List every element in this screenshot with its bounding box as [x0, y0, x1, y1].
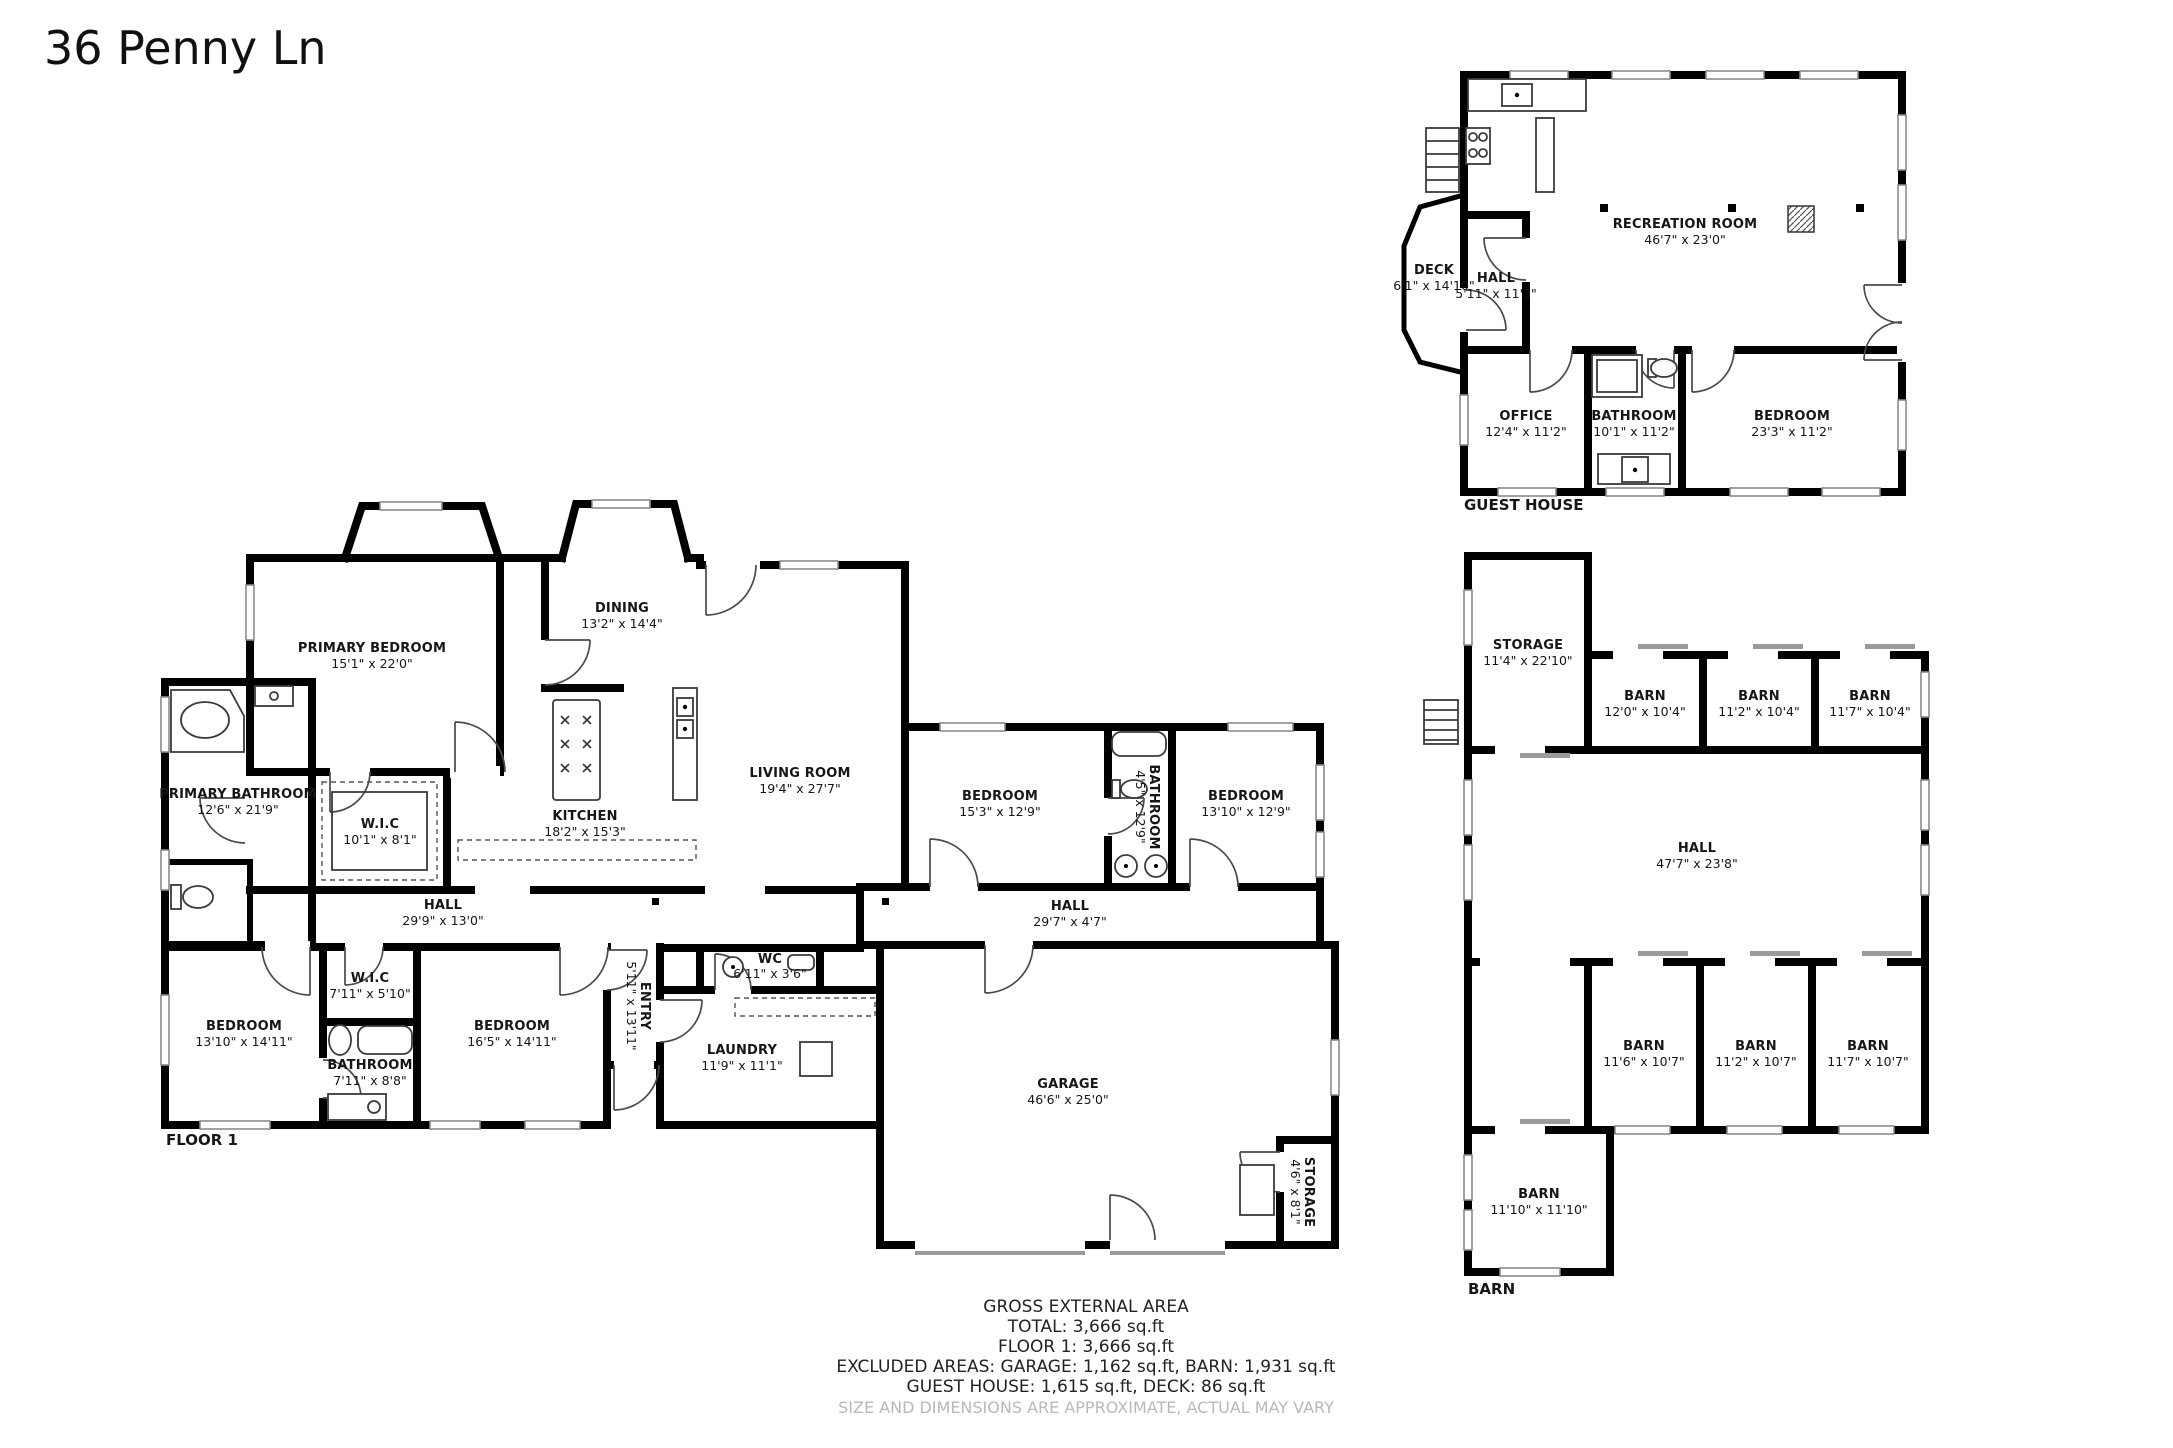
- room-dims-bedroom-mid: 16'5" x 14'11": [467, 1034, 556, 1049]
- floor-plan-page: 36 Penny Ln: [0, 0, 2173, 1448]
- guest-house-plan: RECREATION ROOM 46'7" x 23'0" DECK 6'1" …: [1393, 71, 1907, 514]
- column-marker: [1856, 204, 1864, 212]
- washer-icon: [800, 1042, 832, 1076]
- room-label-living-room: LIVING ROOM: [749, 766, 850, 781]
- room-dims-barn-hall: 47'7" x 23'8": [1656, 856, 1737, 871]
- ladder-icon: [1424, 700, 1458, 744]
- room-label-deck: DECK: [1414, 263, 1455, 278]
- room-label-barn-t1: BARN: [1624, 689, 1666, 704]
- room-dims-gh-hall: 5'11" x 11'3": [1455, 286, 1536, 301]
- room-label-barn-b1: BARN: [1623, 1039, 1665, 1054]
- room-label-wic: W.I.C: [361, 817, 400, 832]
- room-label-wic-small: W.I.C: [351, 971, 390, 986]
- room-dims-barn-sw: 11'10" x 11'10": [1490, 1202, 1587, 1217]
- room-dims-bedroom-right2: 13'10" x 12'9": [1201, 804, 1290, 819]
- caption-barn: BARN: [1468, 1280, 1515, 1298]
- room-dims-garage: 46'6" x 25'0": [1027, 1092, 1108, 1107]
- workbench-icon: [1240, 1165, 1274, 1215]
- room-label-gh-bathroom: BATHROOM: [1591, 409, 1676, 424]
- room-label-barn-sw: BARN: [1518, 1187, 1560, 1202]
- room-dims-bedroom-left: 13'10" x 14'11": [195, 1034, 292, 1049]
- room-label-bedroom-right2: BEDROOM: [1208, 789, 1284, 804]
- room-label-gh-bedroom: BEDROOM: [1754, 409, 1830, 424]
- area-summary: GROSS EXTERNAL AREA TOTAL: 3,666 sq.ft F…: [836, 1297, 1335, 1417]
- room-dims-barn-b1: 11'6" x 10'7": [1603, 1054, 1684, 1069]
- room-dims-barn-t1: 12'0" x 10'4": [1604, 704, 1685, 719]
- room-label-wc: WC: [758, 952, 782, 967]
- toilet-icon: [183, 886, 213, 908]
- room-label-kitchen: KITCHEN: [552, 809, 617, 824]
- room-label-bedroom-right1: BEDROOM: [962, 789, 1038, 804]
- summary-disclaimer: SIZE AND DIMENSIONS ARE APPROXIMATE, ACT…: [838, 1398, 1334, 1417]
- room-label-primary-bedroom: PRIMARY BEDROOM: [298, 641, 446, 656]
- room-dims-office: 12'4" x 11'2": [1485, 424, 1566, 439]
- fireplace-icon: [1788, 206, 1814, 232]
- room-dims-recreation-room: 46'7" x 23'0": [1644, 232, 1725, 247]
- room-label-barn-hall: HALL: [1678, 841, 1716, 856]
- room-label-dining: DINING: [595, 601, 649, 616]
- room-dims-gh-bedroom: 23'3" x 11'2": [1751, 424, 1832, 439]
- summary-guesthouse-deck: GUEST HOUSE: 1,615 sq.ft, DECK: 86 sq.ft: [907, 1377, 1266, 1397]
- room-dims-barn-t3: 11'7" x 10'4": [1829, 704, 1910, 719]
- room-label-hall-main: HALL: [424, 898, 462, 913]
- room-dims-primary-bedroom: 15'1" x 22'0": [331, 656, 412, 671]
- barn-labels: STORAGE 11'4" x 22'10" BARN 12'0" x 10'4…: [1468, 638, 1911, 1298]
- room-dims-hall-main: 29'9" x 13'0": [402, 913, 483, 928]
- room-dims-wc: 6'11" x 3'6": [733, 966, 806, 981]
- toilet-tank-icon: [171, 885, 181, 909]
- column-marker: [1600, 204, 1608, 212]
- room-label-bedroom-left: BEDROOM: [206, 1019, 282, 1034]
- column-marker: [882, 898, 889, 905]
- summary-excluded: EXCLUDED AREAS: GARAGE: 1,162 sq.ft, BAR…: [836, 1357, 1335, 1377]
- bathtub-icon: [1112, 732, 1166, 756]
- room-dims-wic-small: 7'11" x 5'10": [329, 986, 410, 1001]
- page-title: 36 Penny Ln: [44, 21, 327, 75]
- room-label-barn-t2: BARN: [1738, 689, 1780, 704]
- room-dims-barn-storage: 11'4" x 22'10": [1483, 653, 1572, 668]
- room-label-garage: GARAGE: [1037, 1077, 1099, 1092]
- summary-total: TOTAL: 3,666 sq.ft: [1007, 1317, 1165, 1337]
- floor-plan-image: 36 Penny Ln: [0, 0, 2173, 1448]
- room-dims-gh-bathroom: 10'1" x 11'2": [1593, 424, 1674, 439]
- room-label-barn-t3: BARN: [1849, 689, 1891, 704]
- shower-icon: [1592, 355, 1642, 397]
- room-label-hall-right: HALL: [1051, 899, 1089, 914]
- kitchen-island-icon: [553, 700, 600, 800]
- room-label-office: OFFICE: [1499, 409, 1552, 424]
- room-label-barn-storage: STORAGE: [1493, 638, 1563, 653]
- room-dims-wic: 10'1" x 8'1": [343, 832, 416, 847]
- toilet-icon: [1651, 359, 1677, 377]
- shower-icon: [328, 1094, 386, 1120]
- summary-heading: GROSS EXTERNAL AREA: [983, 1297, 1189, 1317]
- stove-icon: [1466, 128, 1490, 164]
- room-label-bedroom-mid: BEDROOM: [474, 1019, 550, 1034]
- column-marker: [652, 898, 659, 905]
- room-dims-living-room: 19'4" x 27'7": [759, 781, 840, 796]
- room-dims-bathroom-right: 4'5" x 12'9": [1133, 770, 1148, 843]
- main-house-plan: PRIMARY BEDROOM 15'1" x 22'0" PRIMARY BA…: [159, 500, 1339, 1255]
- sink-icon: [255, 686, 293, 706]
- deck-stairs-icon: [1426, 128, 1459, 192]
- caption-guest-house: GUEST HOUSE: [1464, 496, 1584, 514]
- counter-outline: [458, 840, 696, 860]
- barn-plan: STORAGE 11'4" x 22'10" BARN 12'0" x 10'4…: [1424, 556, 1929, 1298]
- room-label-laundry: LAUNDRY: [707, 1043, 778, 1058]
- room-dims-entry: 5'11" x 13'11": [624, 961, 639, 1050]
- sink-icon: [329, 1025, 351, 1055]
- room-label-barn-b3: BARN: [1847, 1039, 1889, 1054]
- shelf-outline: [735, 998, 875, 1016]
- main-house-labels: PRIMARY BEDROOM 15'1" x 22'0" PRIMARY BA…: [159, 601, 1316, 1227]
- room-label-primary-bathroom: PRIMARY BATHROOM: [159, 787, 317, 802]
- room-label-gh-hall: HALL: [1477, 271, 1515, 286]
- room-dims-barn-t2: 11'2" x 10'4": [1718, 704, 1799, 719]
- corner-tub-icon: [171, 690, 244, 752]
- room-label-barn-b2: BARN: [1735, 1039, 1777, 1054]
- room-dims-barn-b3: 11'7" x 10'7": [1827, 1054, 1908, 1069]
- caption-floor1: FLOOR 1: [166, 1131, 238, 1149]
- room-dims-garage-storage: 4'6" x 8'1": [1288, 1159, 1303, 1225]
- room-dims-primary-bathroom: 12'6" x 21'9": [197, 802, 278, 817]
- room-label-recreation-room: RECREATION ROOM: [1613, 217, 1758, 232]
- room-dims-bedroom-right1: 15'3" x 12'9": [959, 804, 1040, 819]
- room-dims-laundry: 11'9" x 11'1": [701, 1058, 782, 1073]
- room-dims-dining: 13'2" x 14'4": [581, 616, 662, 631]
- column-marker: [1728, 204, 1736, 212]
- kitchen-island-icon: [1536, 118, 1554, 192]
- room-dims-barn-b2: 11'2" x 10'7": [1715, 1054, 1796, 1069]
- room-dims-kitchen: 18'2" x 15'3": [544, 824, 625, 839]
- room-dims-bathroom-small: 7'11" x 8'8": [333, 1073, 406, 1088]
- room-dims-hall-right: 29'7" x 4'7": [1033, 914, 1106, 929]
- bathtub-icon: [358, 1026, 412, 1054]
- summary-floor1: FLOOR 1: 3,666 sq.ft: [998, 1337, 1174, 1357]
- room-label-bathroom-small: BATHROOM: [327, 1058, 412, 1073]
